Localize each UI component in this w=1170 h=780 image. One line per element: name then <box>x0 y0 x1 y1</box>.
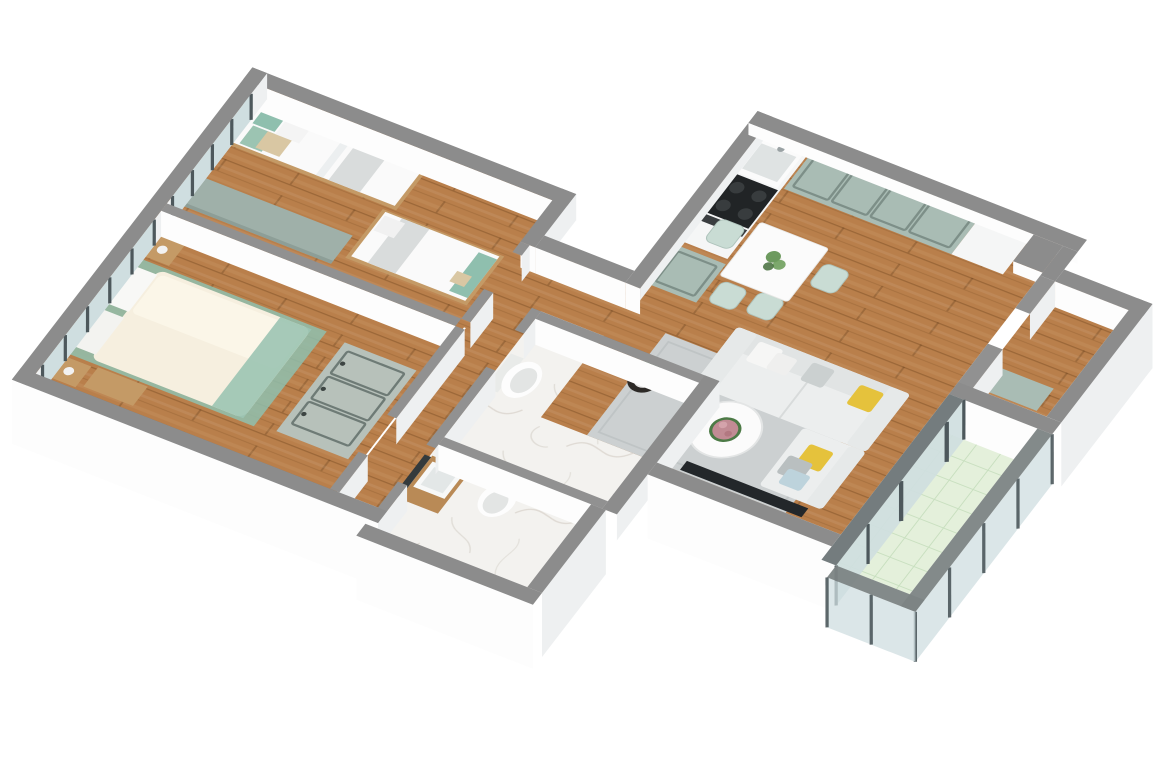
floor-plan-3d-render <box>0 0 1170 780</box>
floor-plan-stage <box>0 0 1170 780</box>
apartment <box>0 0 1170 780</box>
